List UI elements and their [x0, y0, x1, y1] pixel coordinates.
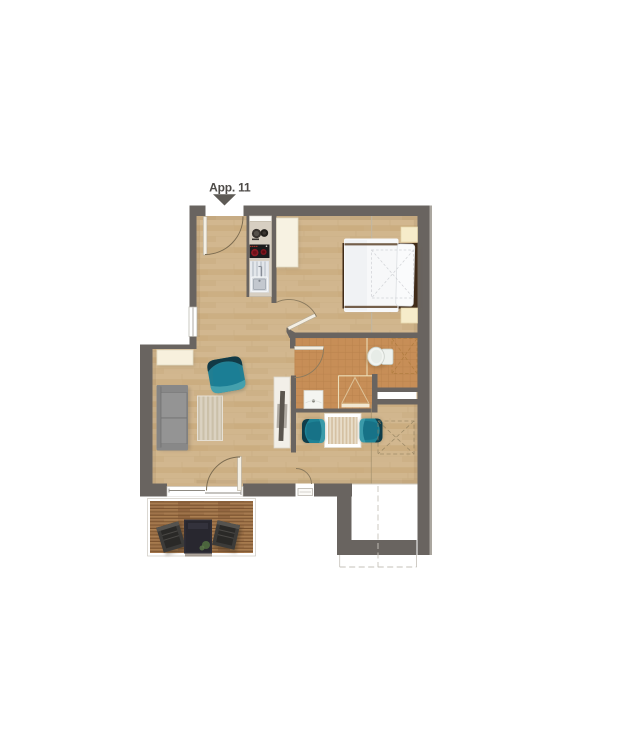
- svg-text:App. 11: App. 11: [209, 180, 251, 194]
